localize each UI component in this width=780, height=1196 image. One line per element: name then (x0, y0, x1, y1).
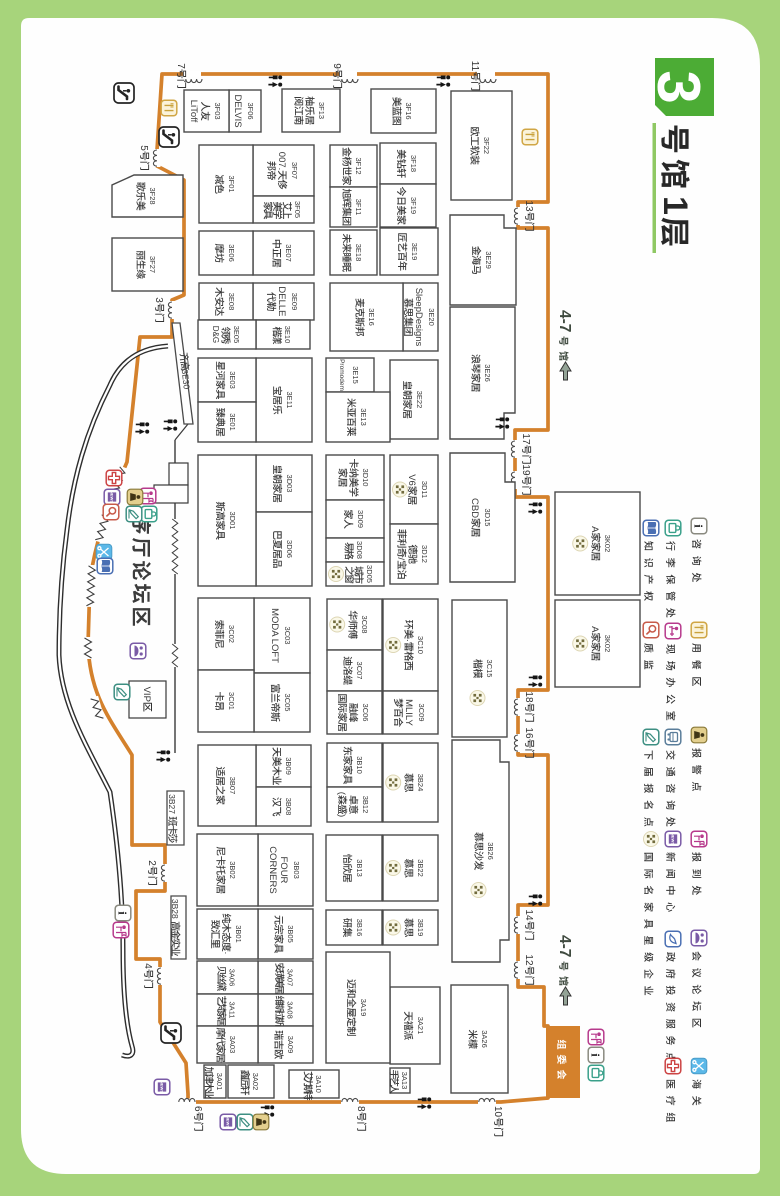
svg-text:3A26: 3A26 (480, 1030, 489, 1048)
svg-text:8: 8 (355, 1106, 366, 1112)
svg-text:3E29: 3E29 (484, 251, 493, 269)
svg-text:6: 6 (192, 1106, 203, 1112)
svg-text:SleepDesigns: SleepDesigns (413, 288, 424, 347)
svg-text:A: A (589, 626, 600, 633)
svg-text:3B19: 3B19 (416, 919, 425, 937)
svg-text:3F27: 3F27 (148, 256, 157, 273)
svg-text:3E16: 3E16 (367, 308, 376, 326)
svg-text:3E11: 3E11 (285, 392, 294, 409)
svg-text:17: 17 (520, 433, 531, 445)
svg-text:3C07: 3C07 (355, 662, 364, 680)
svg-text:3E06: 3E06 (227, 244, 236, 262)
svg-text:14: 14 (523, 909, 534, 921)
svg-text:3A06: 3A06 (228, 969, 237, 987)
svg-text:3E15: 3E15 (351, 366, 360, 384)
svg-text:3A10: 3A10 (314, 1075, 323, 1093)
svg-text:): ) (336, 814, 347, 817)
svg-text:3F12: 3F12 (354, 157, 363, 174)
svg-text:3C06: 3C06 (361, 704, 370, 722)
svg-text:A: A (589, 526, 600, 533)
svg-text:10: 10 (492, 1106, 503, 1118)
svg-text:3D06: 3D06 (285, 540, 294, 558)
svg-text:3D05: 3D05 (365, 565, 374, 583)
svg-text:3E20: 3E20 (427, 308, 436, 326)
svg-text:3F06: 3F06 (246, 102, 255, 119)
svg-text:4: 4 (142, 963, 153, 969)
svg-text:3F16: 3F16 (404, 102, 413, 119)
svg-text:3A21: 3A21 (416, 1017, 425, 1035)
svg-text:3E07: 3E07 (284, 244, 293, 262)
svg-text:3C08: 3C08 (360, 616, 369, 634)
svg-text:3B27: 3B27 (167, 794, 177, 814)
svg-text:3A08: 3A08 (286, 1001, 295, 1019)
svg-text:D&G: D&G (211, 326, 220, 343)
svg-text:3B03: 3B03 (292, 861, 301, 879)
svg-text:LiToff: LiToff (188, 100, 199, 123)
svg-text:3E30: 3E30 (180, 369, 192, 390)
svg-text:3E09: 3E09 (290, 293, 299, 311)
svg-text:5: 5 (138, 145, 149, 151)
svg-text:3: 3 (645, 70, 712, 103)
svg-text:3F19: 3F19 (409, 197, 418, 214)
svg-text:FOUR: FOUR (278, 857, 289, 884)
svg-text:2: 2 (146, 860, 157, 866)
svg-text:3B22: 3B22 (416, 859, 425, 877)
svg-text:3C15: 3C15 (485, 660, 494, 678)
svg-text:3F01: 3F01 (227, 175, 236, 192)
svg-text:3B09: 3B09 (284, 757, 293, 775)
svg-text:3A11: 3A11 (228, 1002, 237, 1019)
svg-text:3A02: 3A02 (251, 1073, 260, 1091)
svg-text:3B01: 3B01 (234, 925, 243, 943)
svg-text:1: 1 (656, 196, 694, 215)
svg-text:3E08: 3E08 (227, 293, 236, 311)
svg-text:3D12: 3D12 (420, 545, 429, 563)
svg-text:3B02: 3B02 (228, 861, 237, 879)
svg-text:3: 3 (153, 297, 164, 303)
svg-text:3A13: 3A13 (400, 1072, 409, 1090)
svg-text:·: · (220, 951, 231, 954)
svg-text:4-7: 4-7 (556, 310, 573, 332)
svg-text:19: 19 (520, 464, 531, 476)
svg-text:3A01: 3A01 (215, 1073, 224, 1091)
svg-text:3A07: 3A07 (286, 969, 295, 987)
svg-text:3C01: 3C01 (227, 692, 236, 710)
svg-text:18: 18 (523, 691, 534, 703)
svg-text:V6: V6 (406, 474, 417, 486)
svg-text:3F07: 3F07 (290, 162, 299, 179)
svg-text:3B12: 3B12 (361, 796, 370, 814)
svg-text:3D08: 3D08 (355, 541, 364, 559)
svg-text:3E26: 3E26 (483, 364, 492, 382)
svg-text:3E01: 3E01 (228, 413, 237, 431)
svg-text:7: 7 (175, 63, 186, 69)
svg-text:3B07: 3B07 (228, 777, 237, 795)
svg-text:·: · (402, 639, 413, 642)
svg-text:3F22: 3F22 (482, 137, 491, 154)
svg-text:VIP: VIP (141, 687, 152, 702)
svg-text:3A09: 3A09 (286, 1036, 295, 1054)
svg-text:3D01: 3D01 (228, 512, 237, 530)
svg-text:3D09: 3D09 (356, 510, 365, 528)
svg-text:3C02: 3C02 (227, 625, 236, 643)
svg-text:3E10: 3E10 (283, 326, 292, 344)
svg-text:3D11: 3D11 (420, 481, 429, 498)
svg-text:3B26: 3B26 (486, 842, 495, 860)
svg-text:16: 16 (523, 727, 534, 739)
svg-text:3E19: 3E19 (410, 243, 419, 261)
svg-text:4-7: 4-7 (556, 935, 573, 957)
svg-text:3C10: 3C10 (416, 636, 425, 654)
svg-text:CORNERS: CORNERS (267, 846, 278, 894)
svg-text:3E05: 3E05 (232, 326, 241, 344)
svg-text:3C09: 3C09 (417, 704, 426, 722)
svg-text:9: 9 (331, 63, 342, 69)
svg-text:3F28: 3F28 (148, 187, 157, 204)
svg-text:3F18: 3F18 (409, 155, 418, 172)
svg-text:3F11: 3F11 (354, 199, 363, 216)
svg-text:3K02: 3K02 (603, 535, 612, 553)
svg-text:11: 11 (469, 61, 480, 72)
svg-text:3E18: 3E18 (354, 244, 363, 262)
svg-text:3B16: 3B16 (355, 919, 364, 937)
svg-text:3B05: 3B05 (286, 925, 295, 943)
svg-text:3F05: 3F05 (293, 201, 302, 218)
svg-text:3C03: 3C03 (283, 627, 292, 645)
svg-text:3B08: 3B08 (284, 798, 293, 816)
svg-text:3K02: 3K02 (603, 635, 612, 653)
svg-text:3E13: 3E13 (359, 408, 368, 426)
svg-text:3B28: 3B28 (170, 899, 180, 919)
svg-text:3E03: 3E03 (228, 371, 237, 389)
svg-text:CBD: CBD (469, 498, 480, 518)
svg-text:12: 12 (523, 954, 534, 966)
svg-text:007.: 007. (276, 152, 287, 171)
svg-text:MODA LOFT: MODA LOFT (269, 608, 280, 663)
svg-text:DELVIS: DELVIS (232, 95, 243, 128)
svg-text:3F13: 3F13 (317, 102, 326, 119)
svg-text:3A03: 3A03 (228, 1036, 237, 1054)
svg-text:3B10: 3B10 (355, 756, 364, 774)
svg-text:3B13: 3B13 (355, 859, 364, 877)
svg-text:3D15: 3D15 (483, 509, 492, 527)
svg-text:3D10: 3D10 (361, 469, 370, 487)
svg-text:13: 13 (523, 200, 534, 212)
svg-text:3A19: 3A19 (359, 999, 368, 1017)
svg-text:/: / (395, 557, 406, 560)
svg-text:3D03: 3D03 (285, 475, 294, 493)
svg-text:Promodem: Promodem (338, 359, 345, 391)
svg-text:3F03: 3F03 (213, 102, 222, 119)
svg-text:3C05: 3C05 (283, 694, 292, 712)
svg-text:MLILY: MLILY (403, 699, 414, 726)
svg-text:3B24: 3B24 (416, 774, 425, 792)
svg-text:DELLE: DELLE (276, 286, 287, 316)
svg-text:3E22: 3E22 (415, 391, 424, 409)
